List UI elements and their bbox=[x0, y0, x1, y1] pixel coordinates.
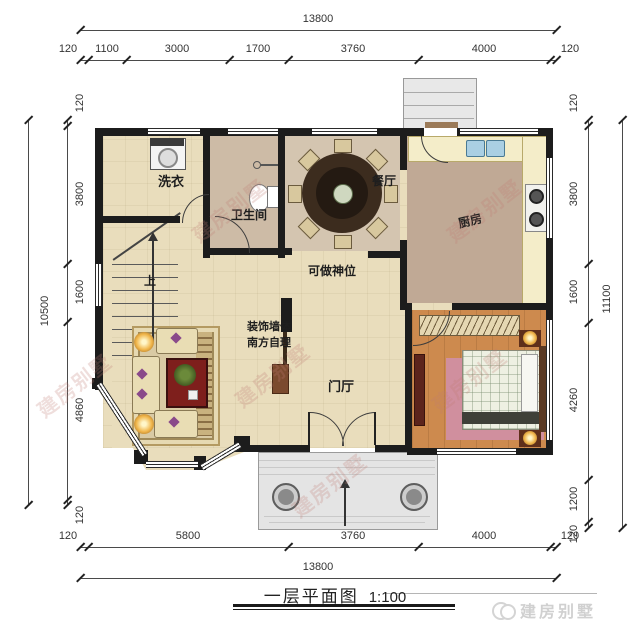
dim-top-1: 1100 bbox=[87, 43, 127, 55]
bed-headboard bbox=[539, 346, 546, 432]
kitchen-sink bbox=[486, 140, 505, 157]
window-bathroom-top bbox=[228, 128, 278, 135]
room-label-dining: 餐厅 bbox=[372, 172, 396, 189]
dim-top-5: 4000 bbox=[464, 43, 504, 55]
dim-left-total: 10500 bbox=[39, 289, 51, 333]
dim-top-3: 1700 bbox=[238, 43, 278, 55]
window-dining-top bbox=[312, 128, 377, 135]
brand-logo: 建房别墅 bbox=[492, 598, 596, 622]
dim-top-6: 120 bbox=[550, 43, 590, 55]
drawing-title: 一层平面图 bbox=[264, 582, 359, 607]
brand-logo-icon bbox=[492, 599, 514, 621]
dim-top-0: 120 bbox=[48, 43, 88, 55]
stair-arrow-head bbox=[148, 232, 158, 241]
dim-right-5: 120 bbox=[568, 516, 580, 552]
dim-left-4: 120 bbox=[74, 497, 86, 533]
floor-lamp bbox=[134, 414, 154, 434]
dim-bottom-total: 13800 bbox=[288, 561, 348, 573]
porch-step-line bbox=[264, 516, 430, 517]
bed-pillow bbox=[521, 354, 538, 412]
window-kitchen-top bbox=[460, 128, 538, 135]
wall-kitchen-stub-top bbox=[400, 136, 407, 170]
dim-line-top-total bbox=[80, 30, 556, 31]
dim-line-bottom-total bbox=[80, 578, 556, 579]
room-label-laundry: 洗衣 bbox=[158, 171, 184, 190]
title-block: 一层平面图 1:100 bbox=[210, 582, 460, 607]
dim-top-total: 13800 bbox=[288, 13, 348, 25]
dining-chair bbox=[334, 139, 352, 153]
wall-bathroom-dining bbox=[278, 136, 285, 258]
dim-right-1: 3800 bbox=[568, 176, 580, 212]
wall-laundry-bottom bbox=[103, 216, 180, 223]
dining-centerpiece bbox=[333, 184, 353, 204]
wall-bedroom-left bbox=[405, 303, 412, 448]
floor-lamp bbox=[134, 332, 154, 352]
coffee-table-wreath bbox=[174, 364, 196, 386]
dim-bottom-3: 4000 bbox=[464, 530, 504, 542]
door-entry-left-line bbox=[308, 412, 310, 445]
washing-machine-panel bbox=[150, 138, 184, 146]
back-step-line bbox=[404, 118, 474, 119]
dim-line-top-segments bbox=[80, 60, 556, 61]
dim-bottom-1: 5800 bbox=[168, 530, 208, 542]
title-underline-thin bbox=[233, 609, 455, 610]
dim-top-2: 3000 bbox=[157, 43, 197, 55]
kitchen-sink bbox=[466, 140, 485, 157]
dim-line-left-total bbox=[28, 120, 29, 505]
dim-right-4: 1200 bbox=[568, 481, 580, 517]
floor-plan-sheet: 13800 120 1100 3000 1700 3760 4000 120 1… bbox=[0, 0, 640, 635]
door-entry-right-line bbox=[374, 412, 376, 445]
washing-machine-drum bbox=[158, 148, 178, 168]
coffee-table-plate bbox=[188, 390, 198, 400]
back-step-line bbox=[404, 92, 474, 93]
stove-burner bbox=[529, 189, 544, 204]
bed-blanket-fold bbox=[462, 412, 542, 424]
note-decor-wall-1: 装饰墙体 bbox=[247, 318, 291, 334]
nightstand-lamp bbox=[523, 331, 537, 345]
brand-logo-text: 建房别墅 bbox=[520, 598, 596, 622]
back-step-line bbox=[404, 105, 474, 106]
window-bedroom-bottom bbox=[437, 448, 516, 455]
drawing-scale: 1:100 bbox=[369, 589, 407, 606]
dining-chair bbox=[288, 185, 302, 203]
stove-burner bbox=[529, 212, 544, 227]
dim-right-0: 120 bbox=[568, 85, 580, 121]
window-laundry-top bbox=[148, 128, 200, 135]
dim-line-right-total bbox=[622, 120, 623, 528]
window-kitchen-right bbox=[546, 158, 553, 238]
sofa-left bbox=[132, 356, 160, 414]
dim-line-left-segments bbox=[67, 120, 68, 505]
entry-axis-arrow-line bbox=[344, 486, 346, 526]
wall-kitchen-stub-bottom bbox=[400, 240, 407, 310]
dim-left-0: 120 bbox=[74, 85, 86, 121]
note-shrine: 可做神位 bbox=[308, 262, 356, 279]
stairs-up-label: 上 bbox=[144, 272, 156, 289]
porch-step-line bbox=[269, 522, 425, 523]
dim-left-2: 1600 bbox=[74, 274, 86, 310]
dining-chair bbox=[334, 235, 352, 249]
dim-right-total: 11100 bbox=[601, 277, 613, 321]
dim-right-2: 1600 bbox=[568, 274, 580, 310]
wall-entry-left bbox=[244, 445, 310, 452]
wall-bedroom-top bbox=[452, 303, 546, 310]
dim-bottom-2: 3760 bbox=[333, 530, 373, 542]
stair-arrow-line bbox=[152, 240, 154, 342]
bay-window-bottom bbox=[146, 461, 198, 468]
nightstand-lamp bbox=[523, 431, 537, 445]
window-bedroom-right bbox=[546, 320, 553, 440]
room-label-foyer: 门厅 bbox=[328, 376, 354, 395]
dim-left-1: 3800 bbox=[74, 176, 86, 212]
dim-right-3: 4260 bbox=[568, 382, 580, 418]
tv-cabinet bbox=[414, 354, 425, 426]
dim-top-4: 3760 bbox=[333, 43, 373, 55]
back-door-opening bbox=[424, 128, 457, 136]
porch-column bbox=[400, 483, 428, 511]
dim-line-bottom-segments bbox=[80, 547, 556, 548]
window-stair-left bbox=[95, 264, 102, 306]
